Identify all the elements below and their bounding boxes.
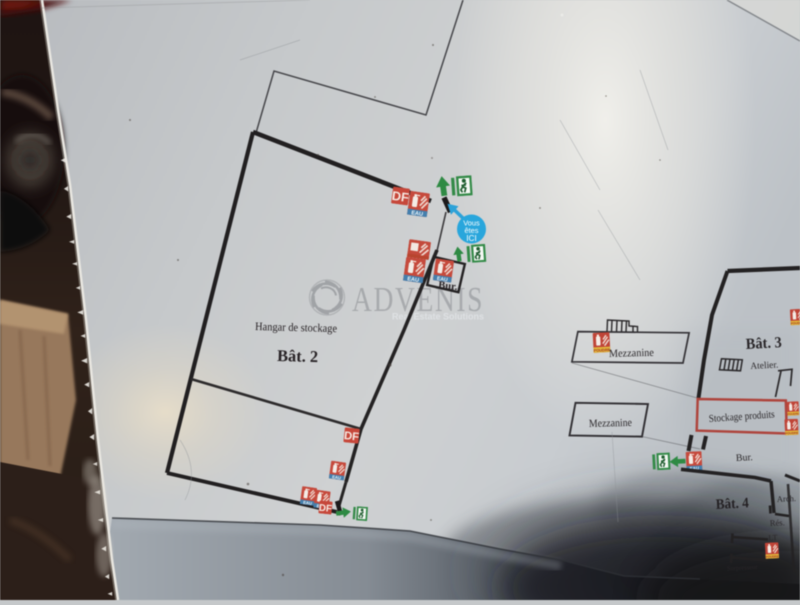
svg-text:Hangar de stockage: Hangar de stockage [255,321,337,335]
svg-text:Bât. 4: Bât. 4 [715,495,749,513]
svg-text:Real Estate Solutions: Real Estate Solutions [392,312,484,323]
svg-text:Mezzanine: Mezzanine [589,417,632,430]
svg-text:Bât. 3: Bât. 3 [745,334,782,353]
svg-text:ICI: ICI [466,234,476,243]
svg-text:Arch.: Arch. [777,493,797,504]
svg-text:Bur.: Bur. [736,452,754,464]
svg-text:Atelier.: Atelier. [750,361,778,372]
svg-text:LT: LT [768,533,778,542]
svg-text:Bât. 2: Bât. 2 [277,346,318,366]
svg-text:Mezzanine: Mezzanine [609,347,654,360]
svg-text:Rés.: Rés. [770,517,785,528]
